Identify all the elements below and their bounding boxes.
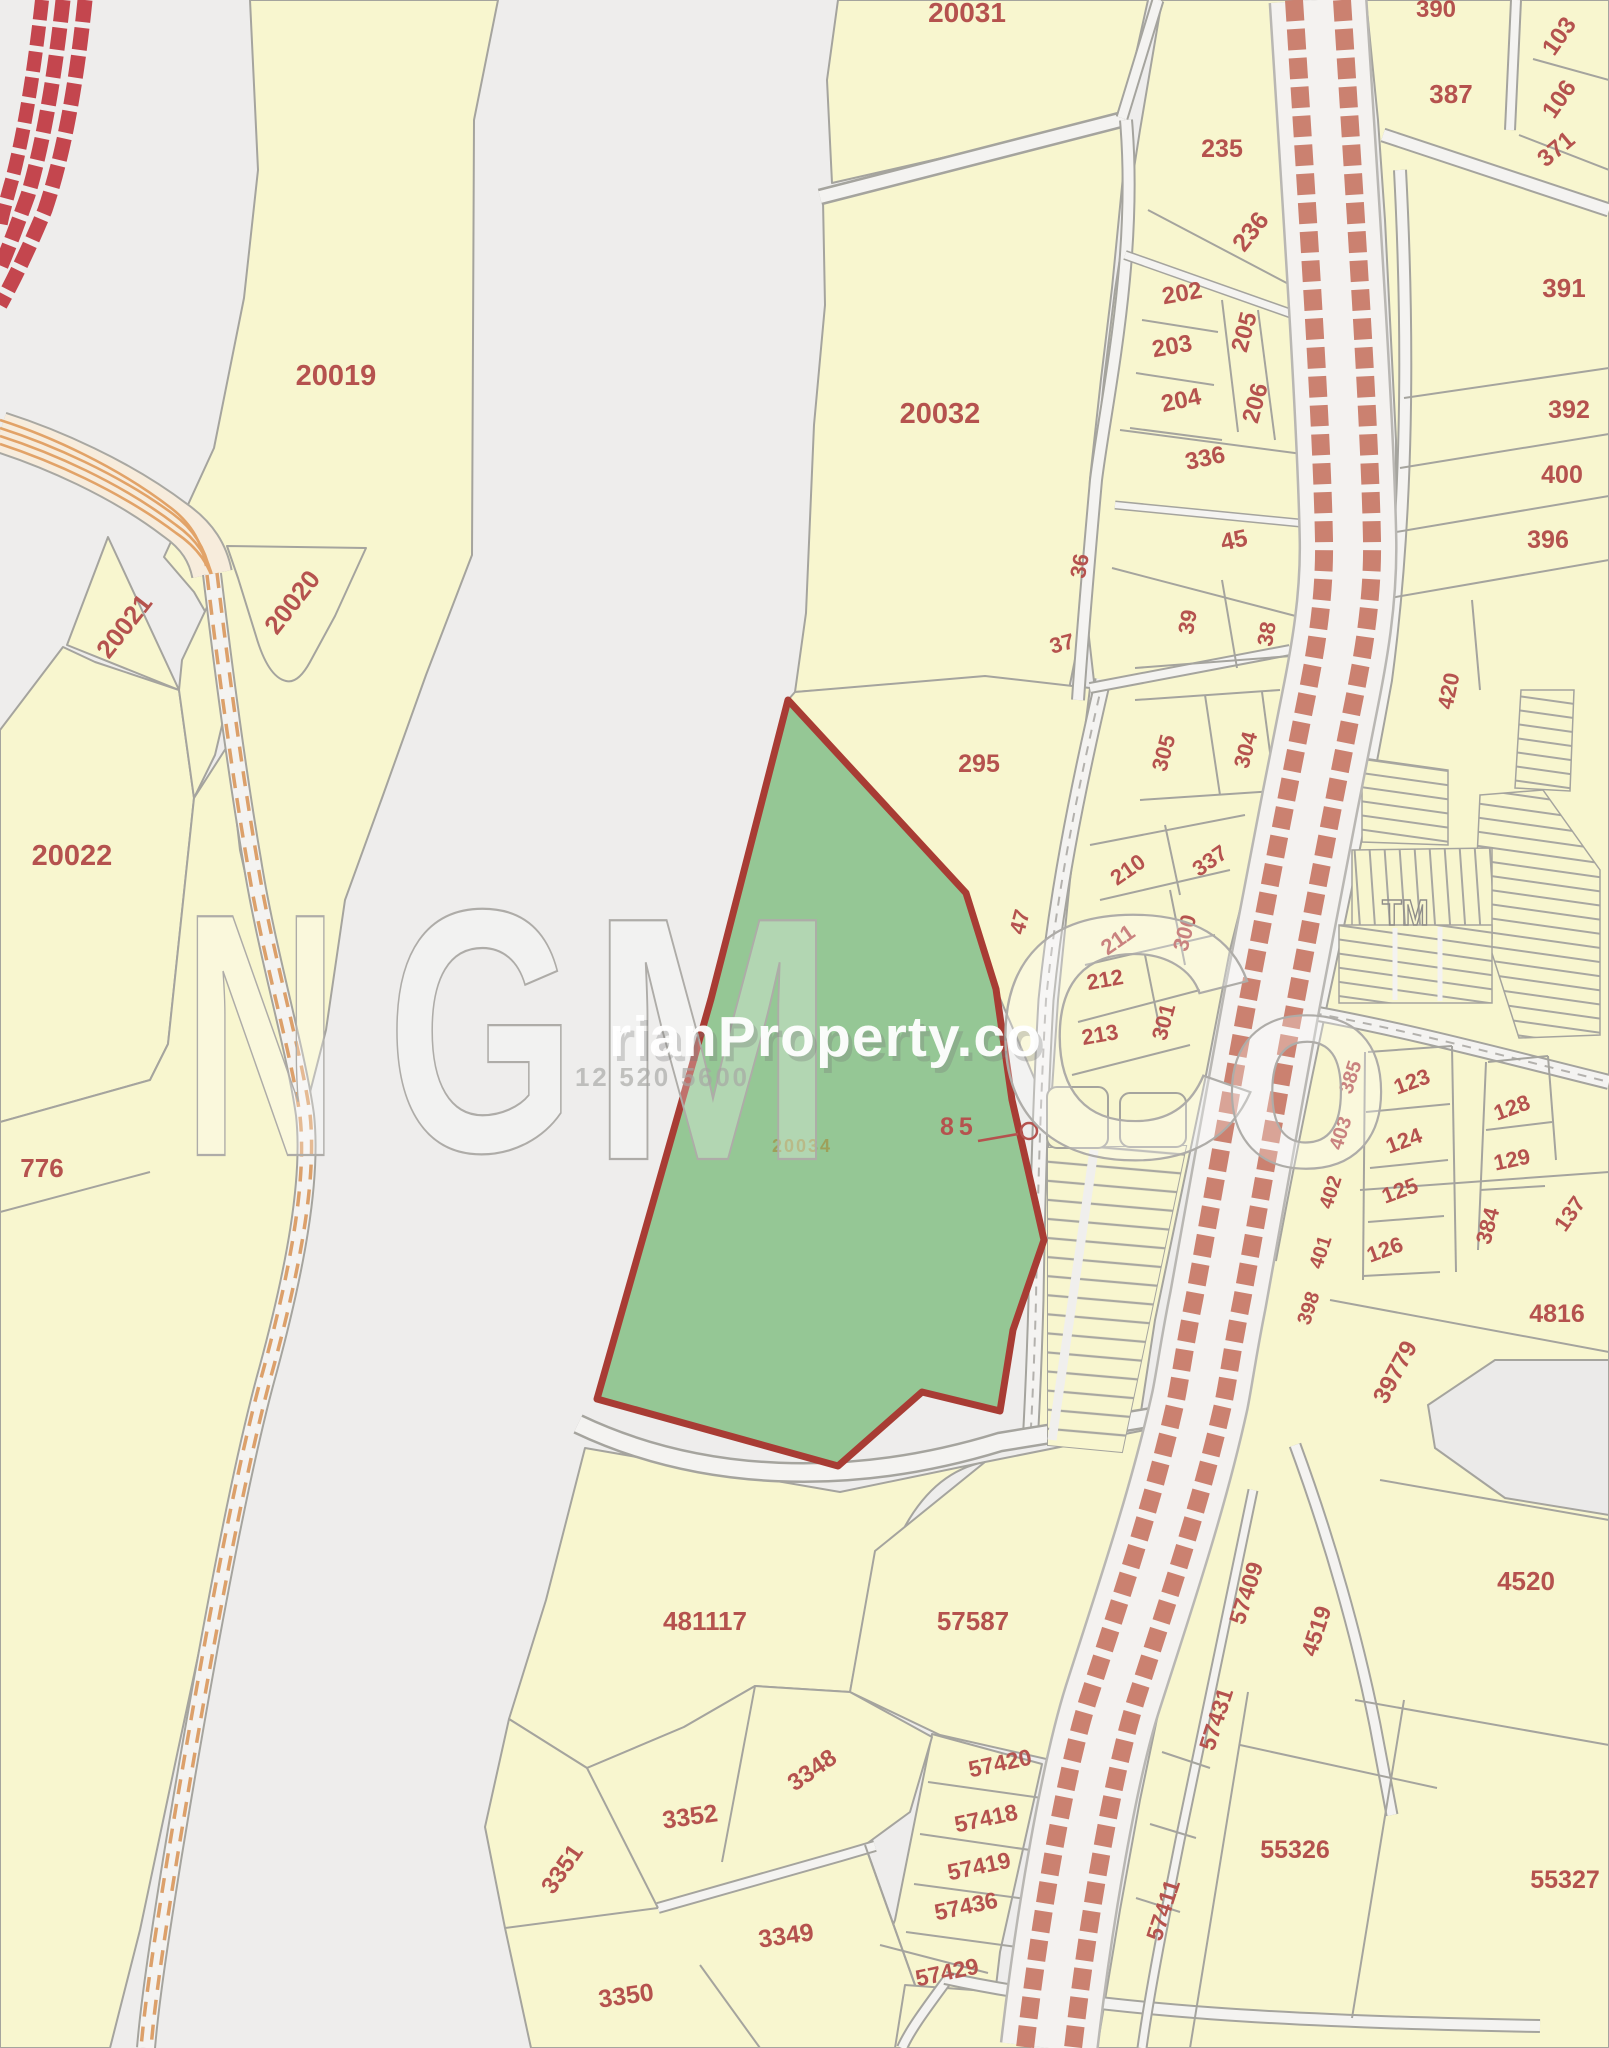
svg-text:20019: 20019	[296, 360, 377, 392]
svg-text:396: 396	[1527, 526, 1569, 554]
svg-text:55327: 55327	[1530, 1866, 1600, 1894]
svg-text:20031: 20031	[928, 0, 1006, 28]
svg-text:776: 776	[20, 1153, 63, 1183]
svg-text:391: 391	[1542, 273, 1585, 303]
svg-text:57587: 57587	[937, 1606, 1009, 1636]
svg-text:TM: TM	[1382, 893, 1429, 933]
svg-text:38: 38	[1252, 620, 1281, 648]
svg-text:392: 392	[1548, 396, 1590, 424]
svg-text:12 520 5600: 12 520 5600	[575, 1062, 747, 1092]
svg-text:390: 390	[1416, 0, 1456, 23]
svg-text:235: 235	[1201, 135, 1243, 163]
svg-text:45: 45	[1218, 525, 1250, 557]
svg-text:4520: 4520	[1497, 1566, 1555, 1596]
svg-text:55326: 55326	[1260, 1836, 1330, 1864]
svg-text:rianProperty.co: rianProperty.co	[609, 1005, 1041, 1069]
svg-text:o: o	[1221, 914, 1392, 1226]
svg-text:400: 400	[1541, 461, 1583, 489]
svg-text:N: N	[183, 842, 338, 1229]
svg-text:20032: 20032	[900, 398, 981, 430]
svg-text:39: 39	[1173, 608, 1202, 636]
svg-text:20022: 20022	[32, 840, 113, 872]
svg-text:387: 387	[1429, 79, 1472, 109]
svg-text:85: 85	[940, 1113, 978, 1141]
svg-text:4816: 4816	[1529, 1300, 1585, 1328]
svg-text:481117: 481117	[663, 1606, 747, 1636]
svg-text:G: G	[387, 838, 576, 1225]
svg-text:36: 36	[1065, 552, 1094, 580]
svg-text:295: 295	[958, 750, 1000, 778]
